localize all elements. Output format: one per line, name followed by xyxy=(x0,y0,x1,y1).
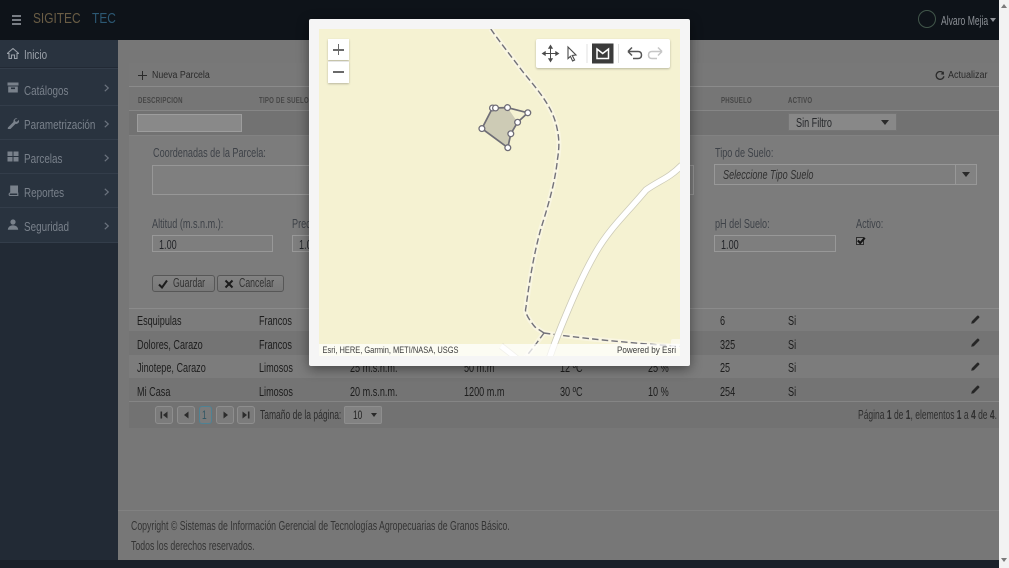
svg-text:Esri, HERE, Garmin, METI/NASA,: Esri, HERE, Garmin, METI/NASA, USGS xyxy=(323,345,459,356)
svg-text:Powered by Esri: Powered by Esri xyxy=(617,345,676,356)
